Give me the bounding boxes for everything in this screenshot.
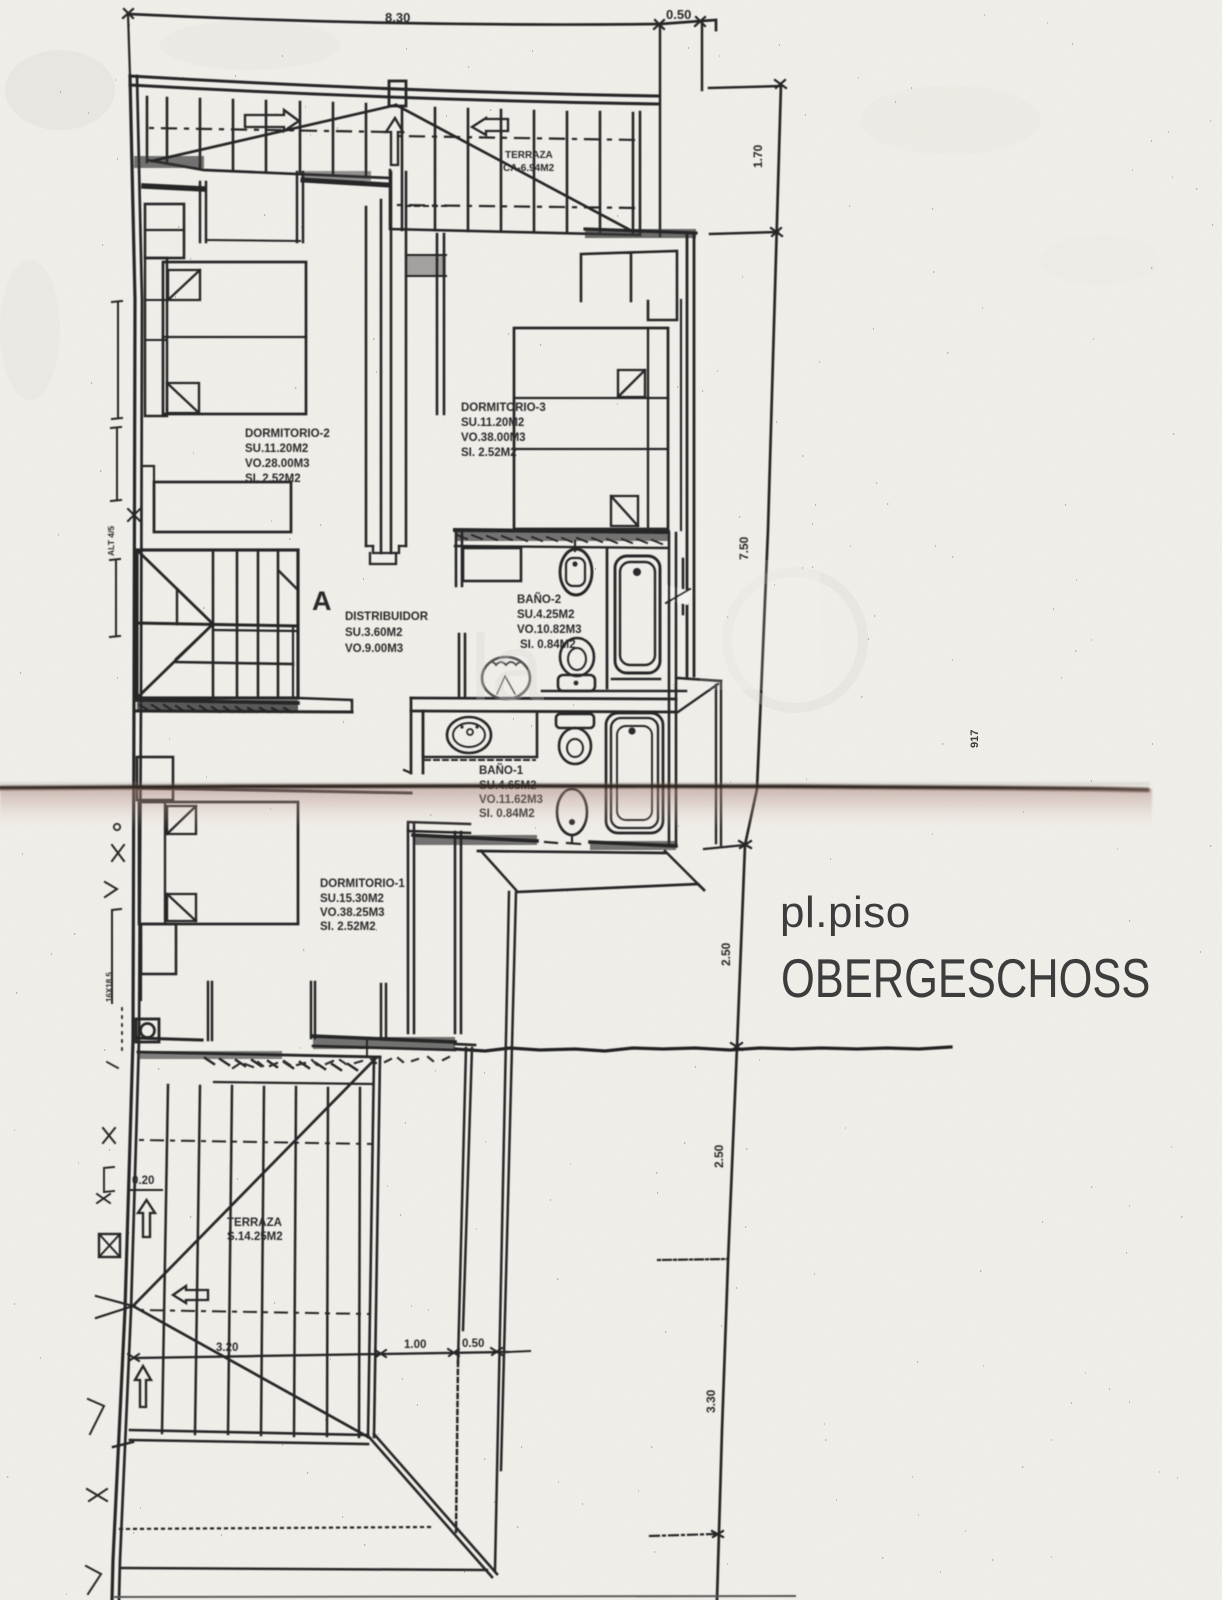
- svg-text:VO.28.00M3: VO.28.00M3: [245, 458, 310, 470]
- svg-text:0.50: 0.50: [462, 1338, 484, 1350]
- svg-text:la: la: [470, 615, 544, 721]
- svg-text:SI. 2.52M2: SI. 2.52M2: [320, 921, 376, 933]
- svg-text:ALT 4/5: ALT 4/5: [106, 526, 116, 556]
- svg-text:BAÑO-2: BAÑO-2: [517, 593, 561, 606]
- svg-text:16X18.5: 16X18.5: [105, 972, 114, 1002]
- svg-text:SU.11.20M2: SU.11.20M2: [461, 417, 524, 429]
- svg-text:TERRAZA: TERRAZA: [227, 1217, 282, 1229]
- svg-text:TERRAZA: TERRAZA: [505, 150, 553, 161]
- svg-text:DORMITORIO-1: DORMITORIO-1: [320, 878, 405, 890]
- svg-text:0.50: 0.50: [666, 7, 691, 22]
- svg-text:SU.11.20M2: SU.11.20M2: [245, 443, 308, 455]
- svg-text:2.50: 2.50: [712, 1144, 726, 1168]
- svg-text:DISTRIBUIDOR: DISTRIBUIDOR: [345, 611, 429, 623]
- svg-text:DORMITORIO-2: DORMITORIO-2: [245, 428, 330, 440]
- svg-text:1.00: 1.00: [404, 1339, 426, 1351]
- svg-text:SU.3.60M2: SU.3.60M2: [345, 627, 403, 639]
- svg-text:OBERGESCHOSS: OBERGESCHOSS: [781, 947, 1150, 1009]
- svg-text:917: 917: [969, 730, 981, 748]
- svg-text:SI. 2.52M2: SI. 2.52M2: [245, 473, 301, 485]
- svg-text:2.50: 2.50: [719, 942, 733, 966]
- svg-text:7.50: 7.50: [737, 536, 751, 560]
- svg-text:SU.15.30M2: SU.15.30M2: [320, 893, 384, 905]
- svg-text:CA-6.94M2: CA-6.94M2: [503, 163, 555, 174]
- svg-text:VO.38.25M3: VO.38.25M3: [320, 907, 385, 919]
- svg-text:1.70: 1.70: [751, 144, 765, 168]
- svg-text:VO.9.00M3: VO.9.00M3: [345, 643, 403, 655]
- svg-text:8.30: 8.30: [385, 10, 410, 25]
- svg-text:DORMITORIO-3: DORMITORIO-3: [461, 402, 546, 414]
- svg-text:BAÑO-1: BAÑO-1: [479, 764, 524, 777]
- svg-text:SI. 2.52M2: SI. 2.52M2: [461, 447, 517, 459]
- svg-text:pl.piso: pl.piso: [780, 888, 911, 937]
- svg-text:0.20: 0.20: [132, 1175, 154, 1187]
- svg-text:3.30: 3.30: [704, 1389, 718, 1413]
- svg-text:3.20: 3.20: [216, 1342, 238, 1354]
- svg-text:A: A: [312, 586, 332, 616]
- svg-text:VO.38.00M3: VO.38.00M3: [461, 432, 526, 444]
- svg-text:S.14.25M2: S.14.25M2: [227, 1231, 283, 1243]
